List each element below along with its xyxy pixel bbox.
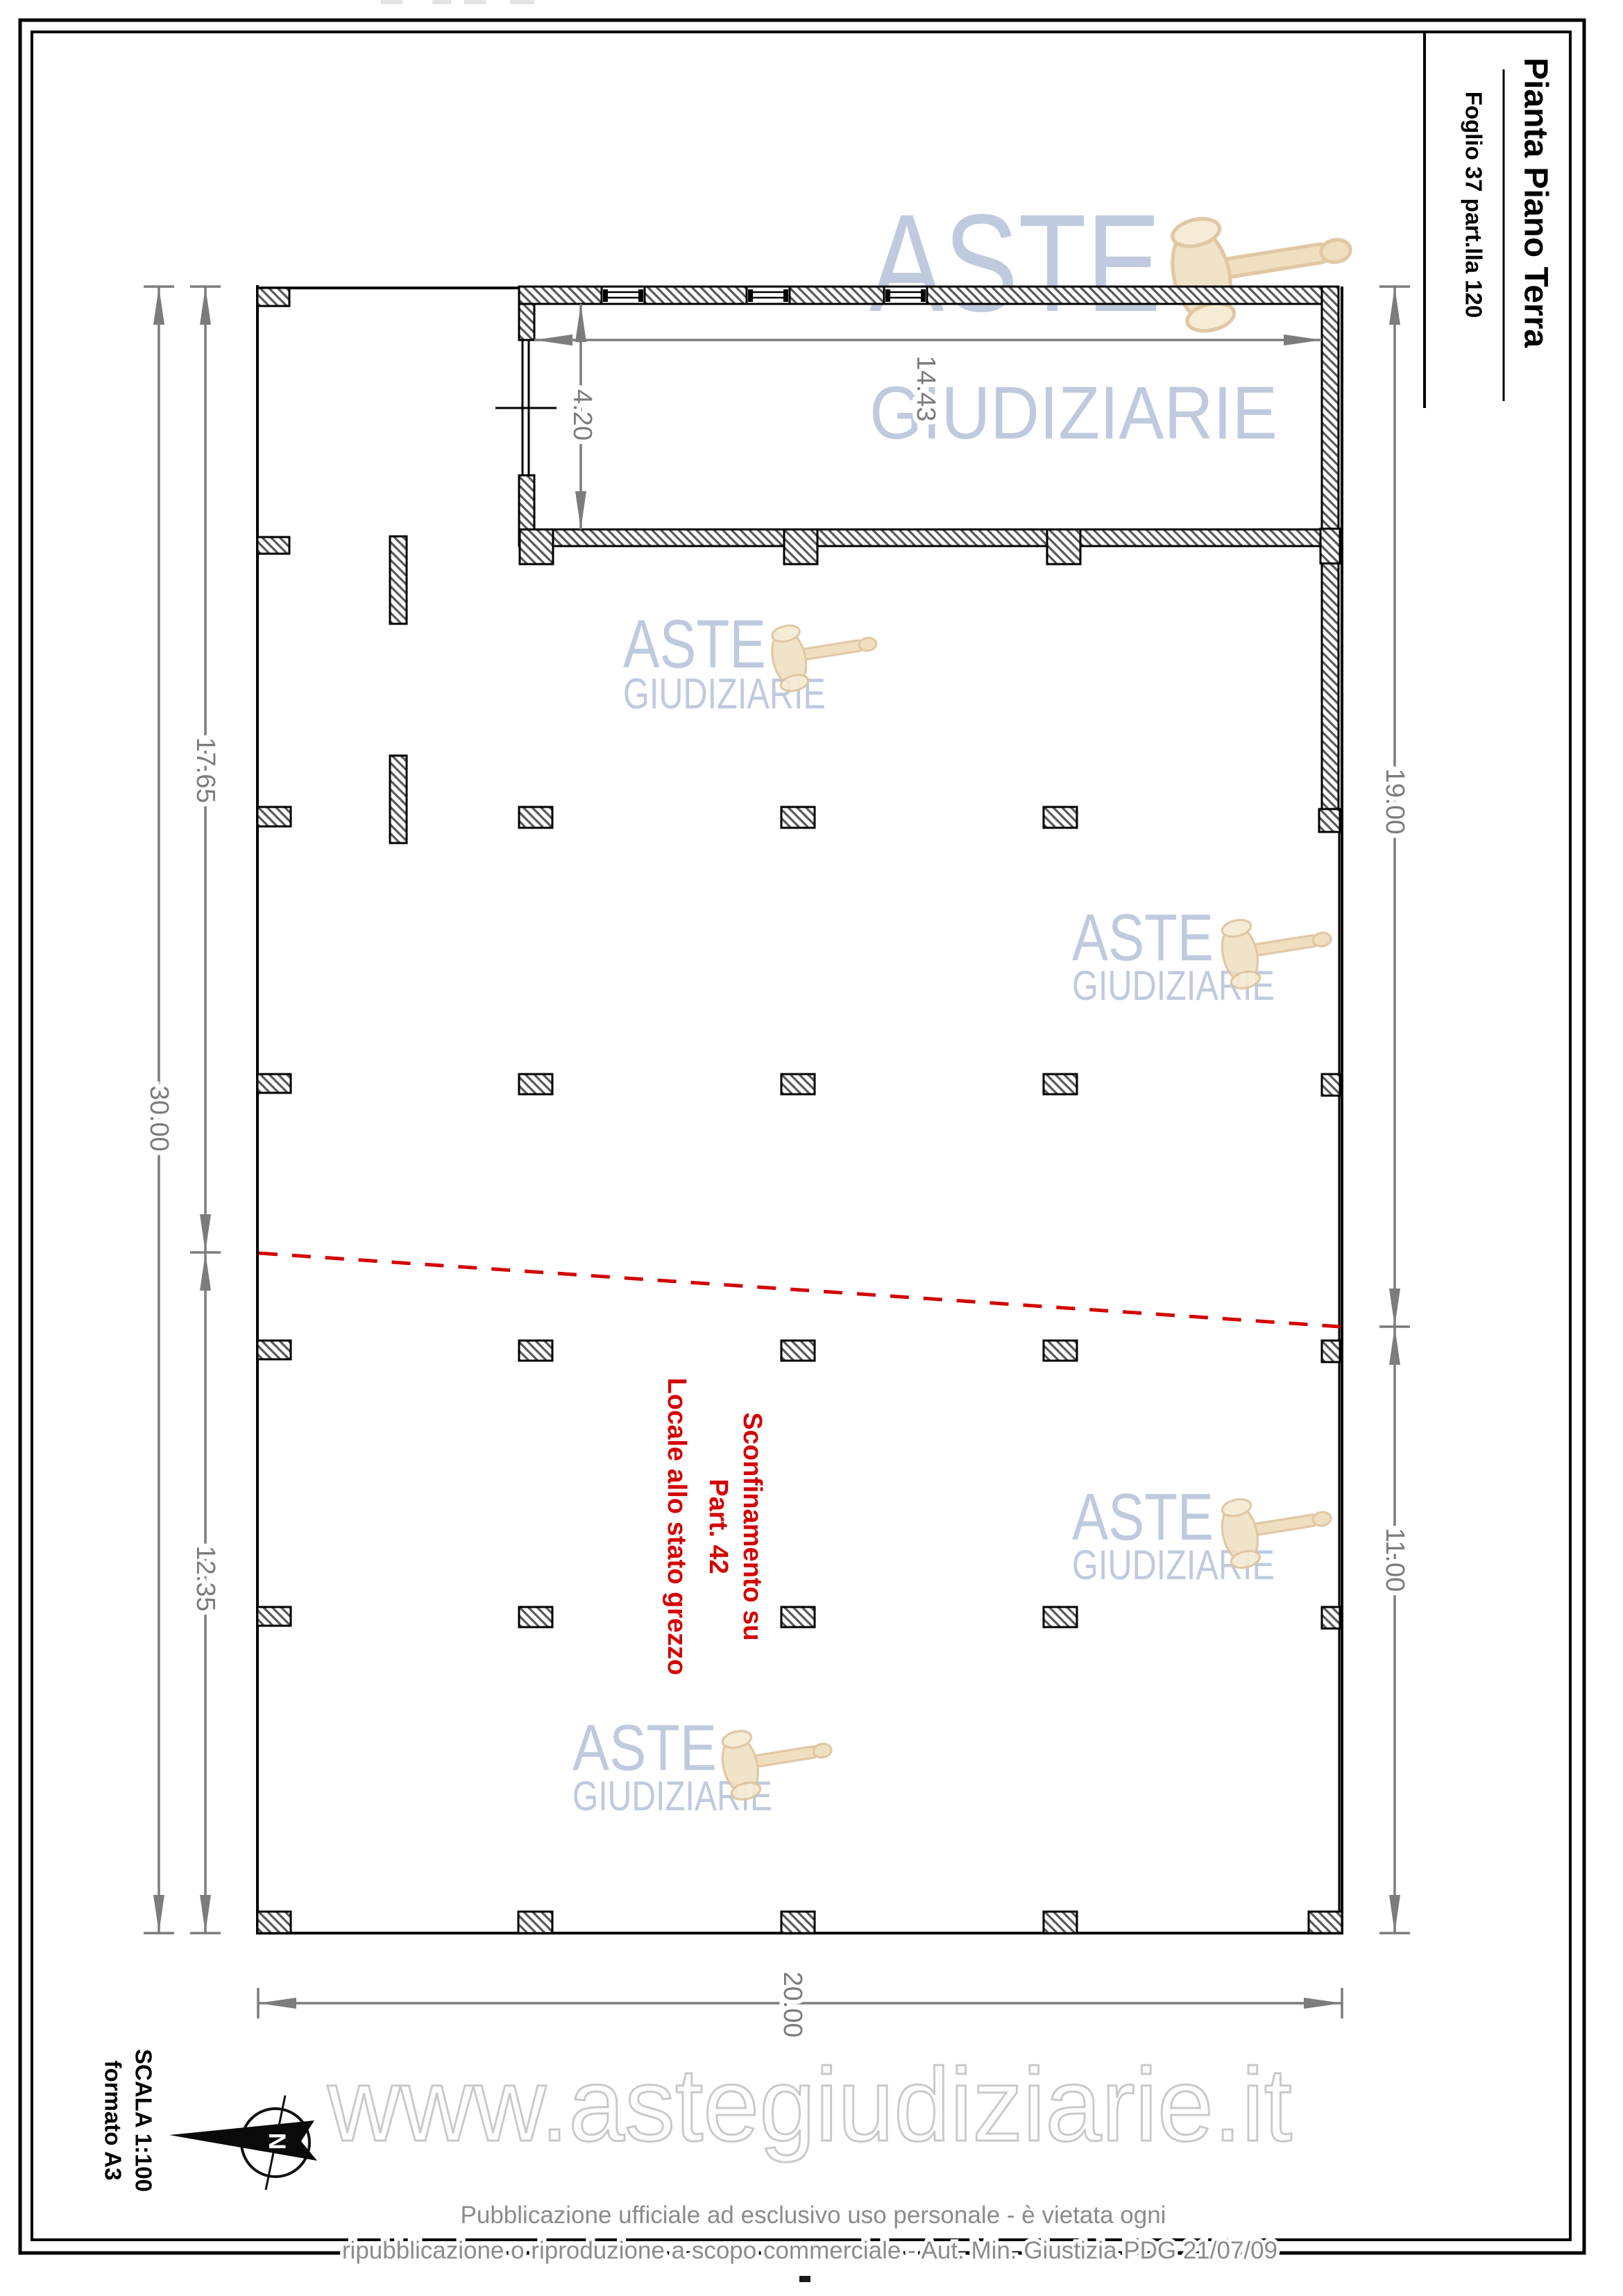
format-label: formato A3 [101,2061,126,2181]
footer-line-1: Pubblicazione ufficiale ad esclusivo uso… [461,2202,1166,2229]
planimetry-page: ASTE GIUDIZIARIE ASTE GIUDIZIARIE ASTE G… [0,0,1623,2296]
page-title: Pianta Piano Terra [1518,58,1554,348]
dim-label-14-43: 14.43 [911,355,940,421]
dim-label-11: 11.00 [1380,1528,1409,1592]
dim-label-30: 30.00 [144,1085,173,1151]
room-left-wall-upper-jamb [519,304,534,340]
room-bottom-wall-hatched [519,529,1339,546]
annotation-line-3: Locale allo stato grezzo [662,1378,691,1676]
window-top-3 [884,287,927,304]
window-top-2 [747,287,790,304]
dim-label-19: 19.00 [1380,768,1409,834]
watermark-aste-1: ASTE [869,186,1161,341]
room-left-wall-lower-jamb [519,475,534,529]
scale-label: SCALA 1:100 [131,2049,157,2192]
website-watermark: www.astegiudiziarie.it [327,2046,1292,2163]
page-background [0,0,1623,2296]
page-subtitle: Foglio 37 part.lla 120 [1461,92,1487,318]
footer-line-2: ripubblicazione o riproduzione a scopo c… [342,2237,1277,2264]
scan-artifact-bottom [799,2276,810,2282]
dim-label-20: 20.00 [778,1971,807,2037]
annotation-line-1: Sconfinamento su [738,1412,767,1640]
dim-label-12-35: 12.35 [191,1545,220,1611]
compass-north-label: N [264,2133,290,2150]
dim-label-4-20: 4.20 [568,389,597,441]
annotation-line-2: Part. 42 [704,1479,733,1574]
dim-label-17-65: 17.65 [191,737,220,803]
window-top-1 [602,287,645,304]
